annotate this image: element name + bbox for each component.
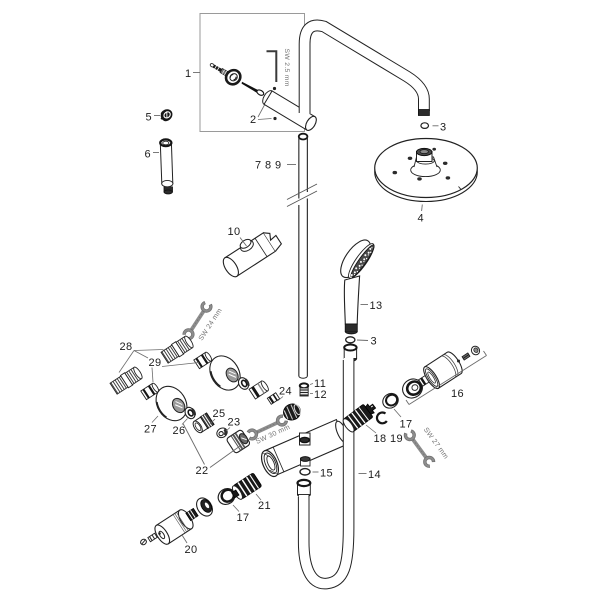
svg-text:4: 4: [418, 213, 425, 225]
svg-text:10: 10: [228, 226, 241, 238]
svg-text:14: 14: [368, 469, 381, 481]
svg-text:17: 17: [400, 419, 413, 431]
svg-text:27: 27: [144, 424, 157, 436]
svg-text:20: 20: [185, 544, 198, 556]
svg-text:13: 13: [370, 300, 383, 312]
svg-text:7 8 9: 7 8 9: [255, 160, 281, 172]
svg-text:12: 12: [314, 389, 327, 401]
svg-text:28: 28: [120, 341, 133, 353]
svg-text:29: 29: [149, 357, 162, 369]
svg-text:23: 23: [228, 417, 241, 429]
svg-text:18 19: 18 19: [374, 433, 404, 445]
svg-text:24: 24: [279, 386, 292, 398]
svg-text:15: 15: [320, 468, 333, 480]
svg-text:22: 22: [196, 465, 209, 477]
svg-text:SW 2.5 mm: SW 2.5 mm: [283, 49, 290, 87]
svg-text:21: 21: [258, 500, 271, 512]
svg-text:1: 1: [185, 68, 192, 80]
svg-text:2: 2: [250, 114, 257, 126]
svg-text:16: 16: [451, 388, 464, 400]
svg-text:3: 3: [440, 122, 447, 134]
svg-text:26: 26: [173, 425, 186, 437]
svg-text:25: 25: [213, 408, 226, 420]
svg-text:17: 17: [237, 512, 250, 524]
svg-text:6: 6: [145, 149, 152, 161]
svg-text:5: 5: [146, 112, 153, 124]
svg-text:3: 3: [371, 336, 378, 348]
